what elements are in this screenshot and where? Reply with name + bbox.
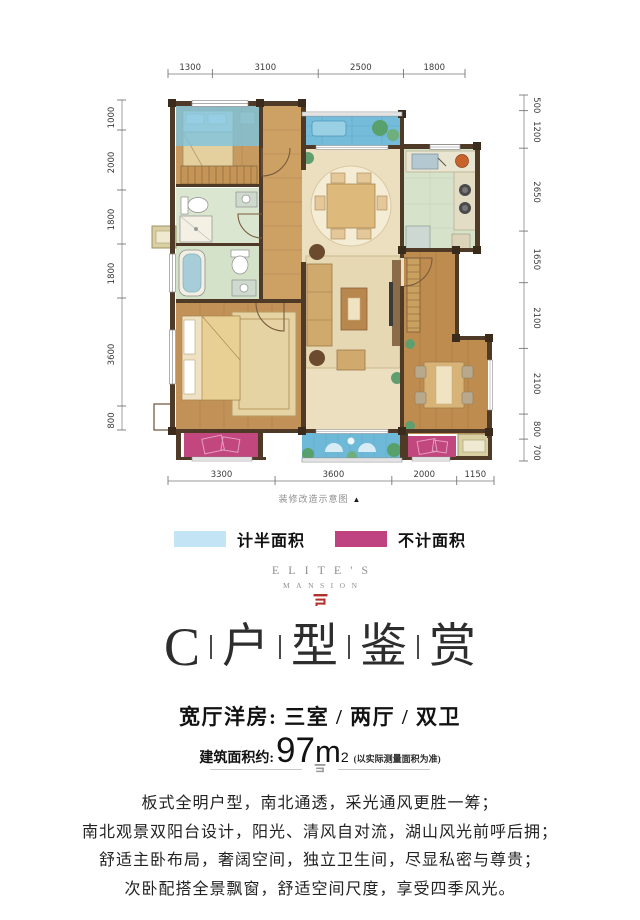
- dimension-label: 800: [107, 412, 117, 428]
- divider-line: [210, 769, 302, 770]
- room-living-dining: [302, 148, 404, 432]
- title-separator: [210, 635, 212, 659]
- legend-swatch: [174, 531, 226, 547]
- description-line: 板式全明户型，南北通透，采光通风更胜一筹；: [0, 790, 640, 819]
- dimension-label: 500: [531, 97, 541, 113]
- dimension-label: 2100: [531, 307, 541, 329]
- balcony-south: [302, 432, 402, 461]
- dimension-label: 3300: [211, 470, 233, 480]
- dimension-label: 1800: [423, 63, 445, 73]
- room-bathroom-2: [176, 246, 260, 300]
- dimension-label: 1800: [107, 209, 117, 231]
- half-area-overlay: [176, 106, 260, 146]
- legend-swatch: [335, 531, 387, 547]
- legend-item: 计半面积: [174, 527, 305, 551]
- up-triangle-icon: ▲: [353, 495, 362, 504]
- description: 板式全明户型，南北通透，采光通风更胜一筹；南北观景双阳台设计，阳光、清风自对流，…: [0, 790, 640, 904]
- dimension-label: 1300: [179, 63, 201, 73]
- title-separator: [279, 635, 281, 659]
- title-separator: [417, 635, 419, 659]
- dimension-label: 1650: [531, 249, 541, 271]
- title-char: C: [164, 617, 200, 677]
- room-master-bedroom: [176, 302, 302, 430]
- brand-logo: ELITE'S MANSION: [0, 563, 640, 607]
- floorplan-graphic: 1300310025001800330036002000115010002000…: [0, 0, 640, 515]
- dimension-label: 3100: [254, 63, 276, 73]
- room-kitchen: [404, 148, 478, 252]
- title-char: 型: [291, 617, 338, 677]
- hallway: [262, 106, 302, 302]
- title-char: 鉴: [360, 617, 407, 677]
- dimension-label: 1200: [531, 121, 541, 143]
- room-study: [404, 252, 490, 434]
- dimension-label: 1800: [107, 263, 117, 285]
- dimension-label: 1000: [107, 107, 117, 129]
- bay-window-study: [406, 436, 456, 458]
- brand-subname: MANSION: [0, 581, 640, 590]
- bay-window-master: [184, 432, 262, 458]
- section-divider: [0, 764, 640, 774]
- rooms: [152, 106, 490, 461]
- area-superscript: 2: [341, 749, 349, 765]
- divider-line: [338, 769, 430, 770]
- dimension-label: 700: [531, 444, 541, 460]
- dimension-label: 2650: [531, 181, 541, 203]
- dimension-label: 2000: [413, 470, 435, 480]
- dimension-label: 800: [531, 421, 541, 437]
- subtitle: 宽厅洋房: 三室 / 两厅 / 双卫: [0, 701, 640, 731]
- legend-label: 计半面积: [237, 527, 305, 551]
- title-char: 赏: [429, 617, 476, 677]
- room-secondary-bedroom: [176, 106, 260, 186]
- brand-name: ELITE'S: [0, 563, 640, 578]
- plan-note-text: 装修改造示意图: [279, 494, 349, 504]
- dimension-label: 3600: [107, 344, 117, 366]
- legend-label: 不计面积: [398, 527, 466, 551]
- dimension-label: 3600: [323, 470, 345, 480]
- divider-mark-icon: [314, 764, 326, 774]
- dimension-label: 2100: [531, 373, 541, 395]
- dimension-label: 2500: [350, 63, 372, 73]
- legend-item: 不计面积: [335, 527, 466, 551]
- page-title: C户型鉴赏: [0, 617, 640, 677]
- room-bathroom-1: [176, 188, 260, 244]
- legend: 计半面积不计面积: [0, 527, 640, 551]
- title-separator: [348, 635, 350, 659]
- dimension-label: 1150: [465, 470, 487, 480]
- brand-mark-icon: [0, 594, 640, 607]
- description-line: 南北观景双阳台设计，阳光、清风自对流，湖山风光前呼后拥；: [0, 819, 640, 848]
- equipment-platform-right: [458, 434, 490, 458]
- balcony-north: [302, 116, 402, 146]
- description-line: 舒适主卧布局，奢阔空间，独立卫生间，尽显私密与尊贵；: [0, 847, 640, 876]
- plan-note: 装修改造示意图▲: [0, 492, 640, 505]
- description-line: 次卧配搭全景飘窗，舒适空间尺度，享受四季风光。: [0, 876, 640, 905]
- dimension-label: 2000: [107, 152, 117, 174]
- title-char: 户: [222, 617, 269, 677]
